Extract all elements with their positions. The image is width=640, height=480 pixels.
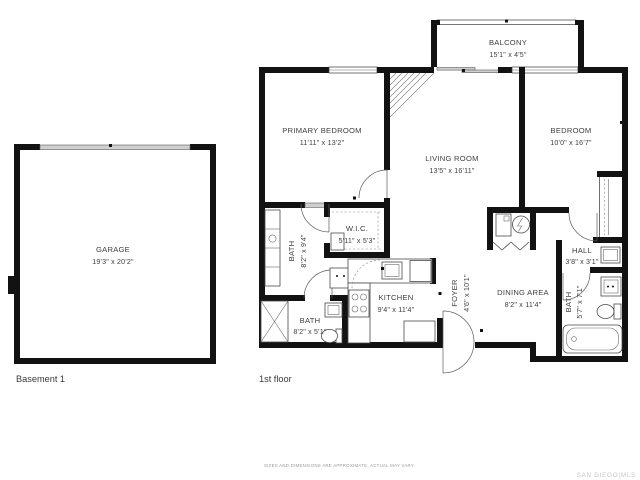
balcony-label: BALCONY [489,38,527,47]
dimension-tick [15,250,18,253]
living-room-label: LIVING ROOM [425,154,478,163]
garage-wall [14,358,216,364]
interior-wall [384,67,390,170]
hall-bath-dims: 5'7" x 7'1" [576,285,584,318]
garage-door-jamb [8,276,15,294]
water-heater-icon [513,216,530,233]
primary-bedroom-dims: 11'11" x 13'2" [300,139,345,147]
bifold-door [511,242,529,250]
foyer-label: FOYER [450,279,459,307]
interior-wall [593,237,628,243]
garage-label: GARAGE [96,245,130,254]
interior-wall [519,67,525,213]
interior-wall [536,207,569,213]
dimension-tick [505,20,508,23]
garage-door [40,145,190,150]
primary-bath-label: BATH [287,241,296,262]
interior-wall [556,240,562,357]
garage-wall [14,144,20,364]
interior-wall [259,295,305,301]
wic-label: W.I.C. [346,224,368,233]
faucet-dot [343,275,345,277]
interior-wall [597,171,628,177]
balcony-wall [431,20,437,67]
basement-floor-label: Basement 1 [16,374,65,384]
faucet-dot [612,286,614,288]
first-floor-label: 1st floor [259,374,292,384]
lower-bath-dims: 8'2" x 5'1" [293,328,326,336]
garage-plan: GARAGE 19'3" x 20'2" [8,144,216,364]
dimension-tick [109,144,112,147]
exterior-wall [578,67,628,73]
bedroom-label: BEDROOM [551,126,592,135]
wic-dims: 5'11" x 5'3" [339,237,376,245]
hall-bath-fixtures [563,277,622,353]
hatched-area [390,73,434,117]
interior-wall [342,295,348,348]
hall-label: HALL [572,246,592,255]
interior-wall [259,202,305,208]
interior-wall [487,207,536,213]
primary-bedroom-door-arc [359,170,387,198]
garage-wall [210,144,216,364]
bifold-door [493,242,511,250]
floorplan-page: GARAGE 19'3" x 20'2" BALCONY 15'1" x 4'5… [0,0,640,480]
exterior-wall [622,67,628,362]
sink-icon [325,303,342,317]
primary-bath-dims: 8'2" x 9'4" [300,234,308,267]
living-room-dims: 13'5" x 16'11" [429,167,474,175]
balcony: BALCONY 15'1" x 4'5" [431,20,584,68]
faucet-dot [336,275,338,277]
toilet-icon [597,305,614,319]
dining-area-dims: 8'2" x 11'4" [505,301,542,309]
lower-bath-door-arc [304,270,332,298]
lower-bath-label: BATH [300,316,321,325]
balcony-wall [578,20,584,67]
dining-area-label: DINING AREA [497,288,549,297]
stove-icon [349,290,369,317]
interior-walls [259,67,628,357]
dimension-tick [109,360,112,363]
first-floor-plan: BALCONY 15'1" x 4'5" [259,20,628,374]
kitchen-dims: 9'4" x 11'4" [378,306,415,314]
interior-wall [329,202,390,208]
fridge-icon [410,261,431,282]
interior-wall [487,207,493,250]
dimension-tick [212,250,215,253]
interior-wall [530,207,536,250]
hall-cabinet [601,247,620,263]
bedroom-closet [600,177,609,237]
garage-dims: 19'3" x 20'2" [92,258,134,266]
balcony-slider-door [462,70,500,73]
kitchen-counter [404,321,435,342]
exterior-wall [498,67,512,73]
kitchen-label: KITCHEN [378,293,413,302]
primary-bedroom-label: PRIMARY BEDROOM [282,126,361,135]
exterior-wall [475,342,536,348]
interior-wall [324,252,390,258]
foyer-dims: 4'6" x 10'1" [463,274,471,312]
balcony-dims: 15'1" x 4'5" [489,51,527,59]
toilet-tank [614,304,621,319]
interior-wall [437,318,443,342]
faucet-dot [607,286,609,288]
entry-door-arc [443,311,474,373]
bedroom-dims: 10'0" x 16'7" [550,139,592,147]
exterior-wall [530,356,628,362]
interior-wall [590,267,628,273]
utility-closet [493,214,530,250]
hall-bath-label: BATH [564,292,573,313]
exterior-wall [259,67,329,73]
disclaimer-text: SIZES AND DIMENSIONS ARE APPROXIMATE, AC… [264,463,415,468]
hall-dims: 3'8" x 3'1" [565,258,598,266]
floorplan-drawing: GARAGE 19'3" x 20'2" BALCONY 15'1" x 4'5… [0,0,640,480]
bedroom-door-arc [569,213,597,241]
mls-logo: SAN DIEGO|MLS [577,472,636,479]
